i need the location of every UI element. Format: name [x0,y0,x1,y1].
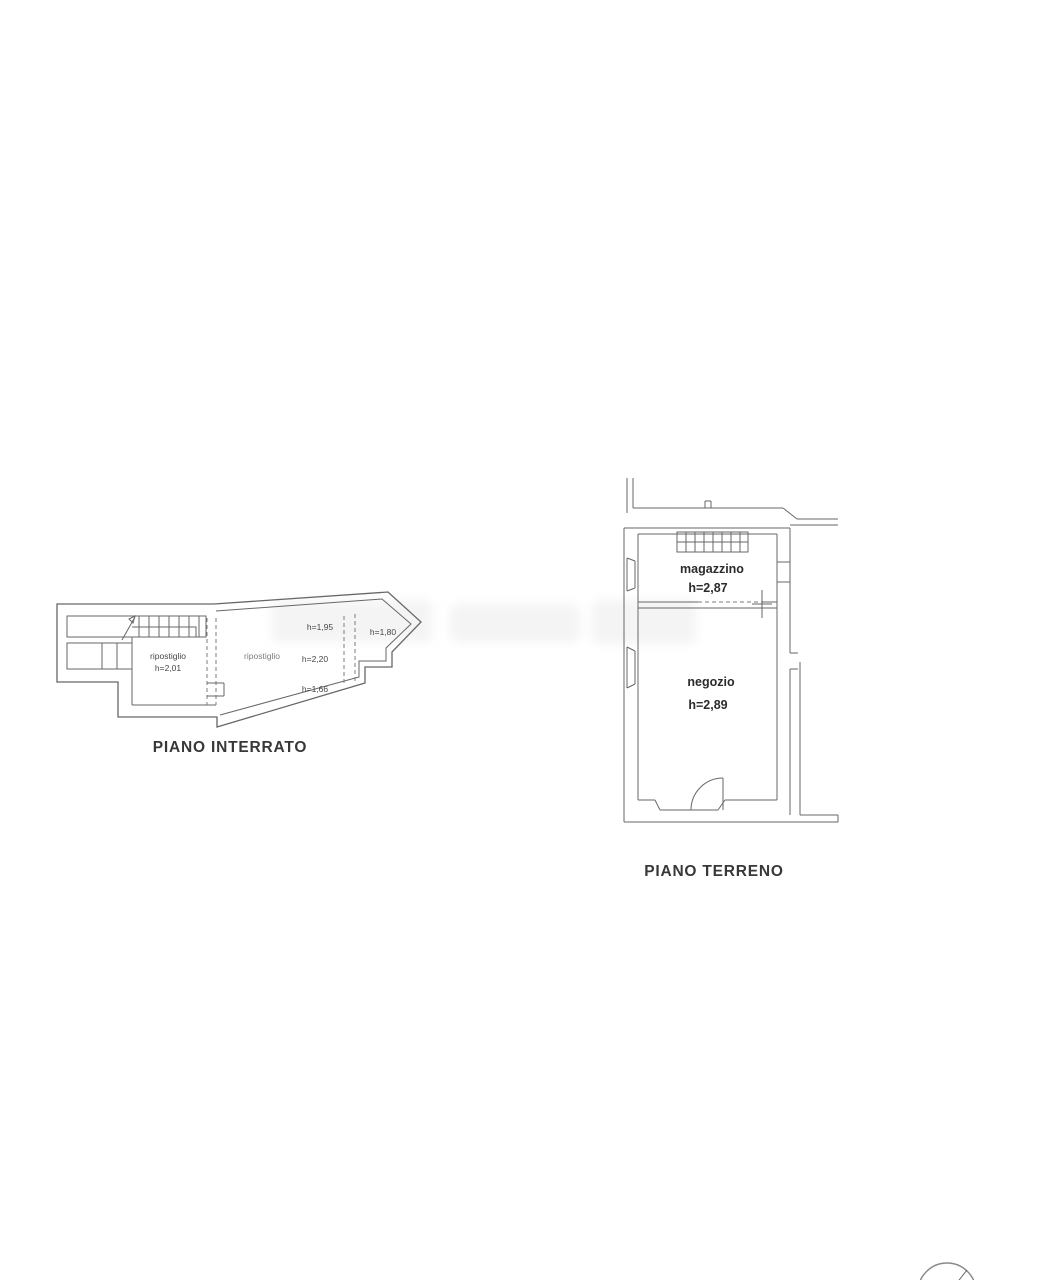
dashed-opening-left [207,618,216,705]
entrance-door [655,778,725,810]
context-walls [627,478,838,822]
outer-wall [57,592,421,727]
height-top-label: h=1,95 [307,622,334,632]
stairs [677,532,748,552]
stairs [122,616,199,640]
door-swing-arc [691,778,723,810]
window-bay-negozio [627,647,635,688]
height-mid-label: h=2,20 [302,654,329,664]
piano-terreno-title: PIANO TERRENO [614,863,814,881]
piano-interrato-title: PIANO INTERRATO [130,739,330,757]
survey-cross-mark [752,590,772,618]
window-bay-magazzino [627,558,635,591]
partial-logo-icon [905,1252,1005,1280]
piano-interrato-drawing: ripostiglio h=2,01 ripostiglio h=1,95 h=… [48,585,448,765]
watermark [450,604,580,642]
room-top-name-label: magazzino [680,562,744,576]
room-top-height-label: h=2,87 [688,581,727,595]
height-point-label: h=1,80 [370,627,397,637]
window-right-wall [777,562,790,582]
piano-terreno-drawing: magazzino h=2,87 negozio h=2,89 [600,470,850,830]
room-bottom-height-label: h=2,89 [688,698,727,712]
room-bottom-name-label: negozio [687,675,735,689]
stairs-arrowhead-icon [129,616,135,623]
room-right-name-label: ripostiglio [244,651,280,661]
dashed-opening-right [344,614,355,685]
cellar-room [67,643,132,669]
room-left-name-label: ripostiglio [150,651,186,661]
room-left-height-label: h=2,01 [155,663,182,673]
dividing-wall [638,602,777,608]
floor-plan-document: ripostiglio h=2,01 ripostiglio h=1,95 h=… [0,0,1038,1280]
height-bottom-label: h=1,66 [302,684,329,694]
